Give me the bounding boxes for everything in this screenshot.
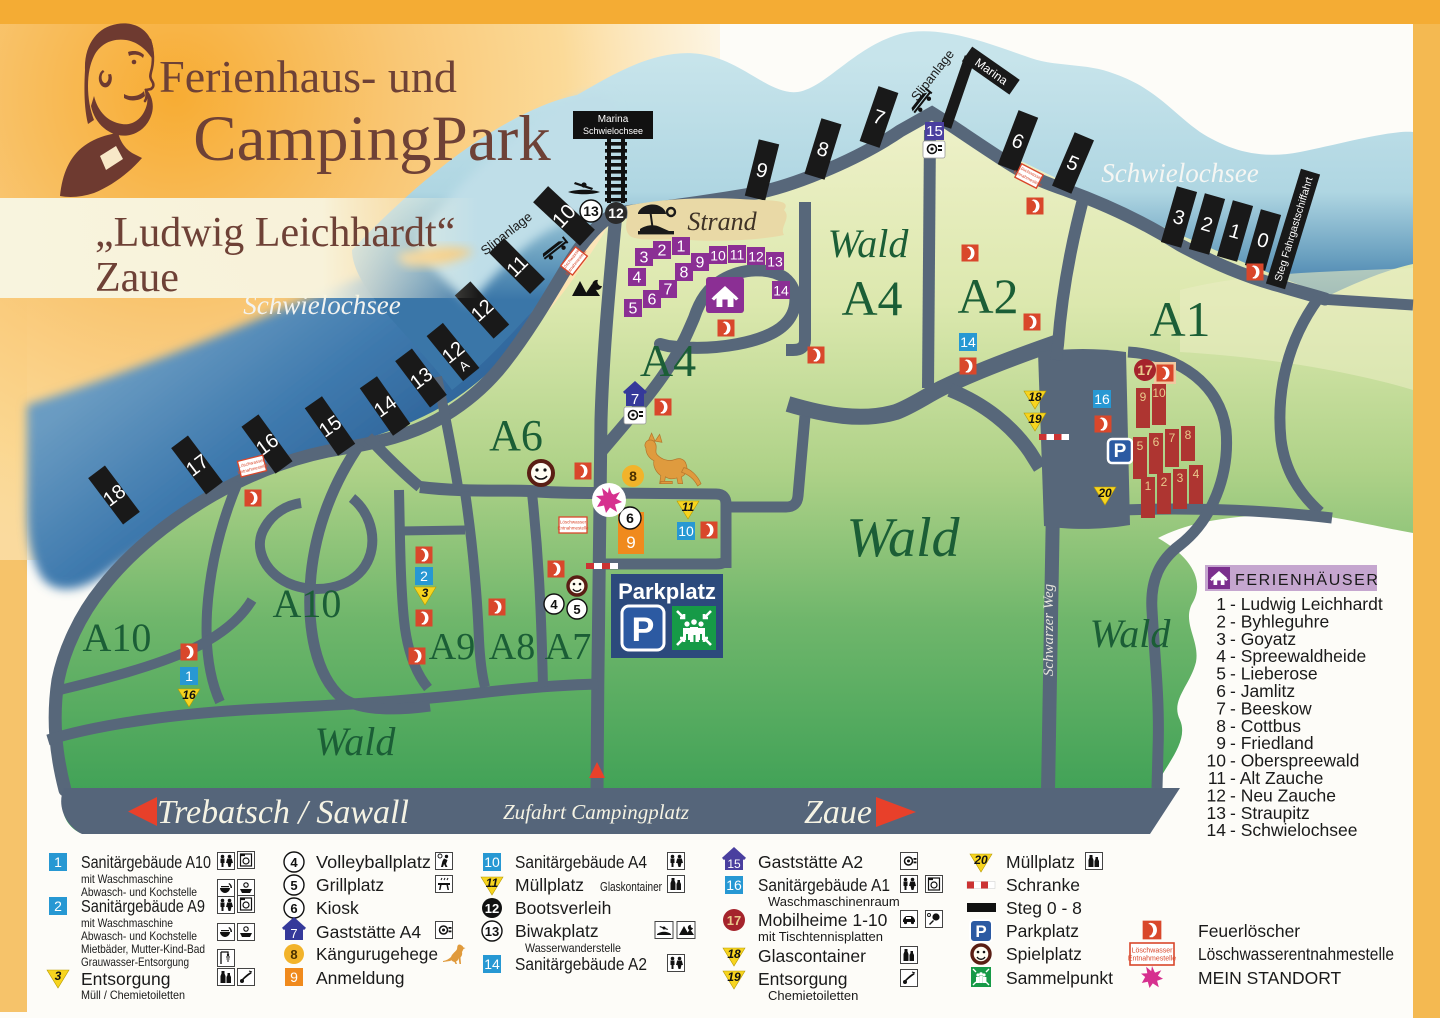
- svg-text:Entnahmestelle: Entnahmestelle: [557, 526, 589, 531]
- svg-text:14: 14: [773, 283, 789, 299]
- svg-text:13: 13: [767, 254, 783, 270]
- svg-text:A2: A2: [957, 268, 1018, 324]
- svg-text:Parkplatz: Parkplatz: [1006, 921, 1079, 941]
- svg-text:4: 4: [633, 270, 642, 287]
- svg-text:P: P: [975, 922, 986, 941]
- svg-text:Grillplatz: Grillplatz: [316, 875, 384, 895]
- svg-text:Zaue: Zaue: [95, 255, 179, 301]
- svg-text:Schwielochsee: Schwielochsee: [583, 126, 643, 136]
- svg-text:8: 8: [1185, 428, 1192, 442]
- svg-text:3: 3: [640, 250, 649, 267]
- svg-text:14: 14: [960, 334, 976, 350]
- svg-text:11: 11: [486, 876, 499, 890]
- svg-text:13: 13: [583, 203, 599, 219]
- svg-text:11: 11: [682, 500, 695, 514]
- svg-text:15: 15: [727, 857, 741, 871]
- svg-text:A10: A10: [273, 581, 342, 626]
- svg-text:14: 14: [1207, 820, 1227, 840]
- svg-text:Kiosk: Kiosk: [316, 898, 359, 918]
- svg-text:17: 17: [1137, 362, 1153, 378]
- svg-text:3: 3: [55, 969, 62, 983]
- svg-text:Bootsverleih: Bootsverleih: [515, 898, 611, 918]
- svg-text:18: 18: [727, 947, 741, 961]
- svg-text:mit Waschmaschine: mit Waschmaschine: [81, 872, 173, 886]
- svg-text:7: 7: [290, 926, 297, 941]
- svg-text:16: 16: [1094, 391, 1110, 407]
- svg-text:19: 19: [727, 970, 741, 984]
- svg-text:Steg 0 - 8: Steg 0 - 8: [1006, 898, 1082, 918]
- svg-text:6: 6: [648, 292, 657, 309]
- svg-text:Waschmaschinenraum: Waschmaschinenraum: [768, 894, 900, 909]
- svg-text:CampingPark: CampingPark: [193, 103, 551, 175]
- svg-text:10: 10: [484, 854, 500, 870]
- svg-text:9: 9: [1140, 390, 1147, 404]
- svg-text:5: 5: [1137, 439, 1144, 453]
- svg-text:Trebatsch / Sawall: Trebatsch / Sawall: [157, 794, 409, 831]
- svg-text:Sanitärgebäude A10: Sanitärgebäude A10: [81, 852, 211, 872]
- svg-text:2: 2: [658, 243, 667, 260]
- svg-text:Wald: Wald: [828, 221, 910, 266]
- svg-text:5: 5: [629, 301, 638, 318]
- svg-text:1: 1: [185, 668, 193, 684]
- svg-text:Schwarzer Weg: Schwarzer Weg: [1041, 583, 1057, 676]
- svg-text:A4: A4: [640, 335, 696, 386]
- svg-text:8: 8: [290, 947, 297, 962]
- svg-text:Kängurugehege: Kängurugehege: [316, 944, 438, 964]
- svg-text:4: 4: [550, 597, 558, 612]
- svg-text:Zufahrt Campingplatz: Zufahrt Campingplatz: [503, 800, 689, 824]
- svg-text:9: 9: [696, 255, 705, 272]
- svg-text:20: 20: [1097, 486, 1112, 500]
- svg-text:8: 8: [680, 265, 689, 282]
- svg-text:5: 5: [573, 602, 580, 617]
- svg-text:Müllplatz: Müllplatz: [1006, 852, 1075, 872]
- svg-text:2: 2: [1161, 475, 1168, 489]
- svg-text:9: 9: [626, 533, 635, 552]
- svg-text:10: 10: [710, 248, 726, 264]
- svg-text:4: 4: [1193, 467, 1200, 481]
- svg-text:Löschwasser: Löschwasser: [1132, 948, 1174, 955]
- svg-text:mit Waschmaschine: mit Waschmaschine: [81, 916, 173, 930]
- svg-text:12: 12: [608, 205, 624, 221]
- svg-text:„Ludwig Leichhardt“: „Ludwig Leichhardt“: [95, 210, 455, 256]
- svg-text:Glaskontainer: Glaskontainer: [600, 880, 662, 894]
- svg-text:Marina: Marina: [598, 114, 629, 125]
- svg-text:4: 4: [290, 855, 298, 870]
- svg-text:2: 2: [420, 568, 428, 584]
- svg-text:Entsorgung: Entsorgung: [81, 969, 171, 989]
- svg-text:Mietbäder, Mutter-Kind-Bad: Mietbäder, Mutter-Kind-Bad: [81, 942, 205, 956]
- svg-text:12: 12: [748, 249, 764, 265]
- svg-text:3: 3: [1177, 471, 1184, 485]
- svg-text:Sanitärgebäude A1: Sanitärgebäude A1: [758, 875, 890, 895]
- svg-text:10: 10: [1152, 386, 1166, 400]
- svg-text:8: 8: [629, 468, 637, 484]
- svg-text:1: 1: [1145, 479, 1152, 493]
- svg-text:6: 6: [626, 510, 634, 526]
- svg-text:A6: A6: [489, 411, 543, 460]
- svg-text:16: 16: [726, 877, 742, 893]
- svg-text:1: 1: [54, 854, 62, 870]
- svg-text:Müllplatz: Müllplatz: [515, 875, 584, 895]
- svg-text:7: 7: [664, 282, 673, 299]
- svg-text:P: P: [1114, 441, 1127, 462]
- svg-text:Sanitärgebäude A4: Sanitärgebäude A4: [515, 852, 647, 872]
- svg-text:19: 19: [1028, 412, 1042, 426]
- svg-text:12: 12: [485, 901, 499, 916]
- svg-text:6: 6: [290, 901, 297, 916]
- svg-text:Gaststätte A4: Gaststätte A4: [316, 922, 421, 942]
- svg-text:Schranke: Schranke: [1006, 875, 1080, 895]
- svg-text:Mobilheime 1-10: Mobilheime 1-10: [758, 910, 888, 930]
- svg-text:Strand: Strand: [687, 207, 757, 236]
- svg-text:Anmeldung: Anmeldung: [316, 968, 405, 988]
- svg-text:Volleyballplatz: Volleyballplatz: [316, 852, 431, 872]
- svg-text:Parkplatz: Parkplatz: [618, 579, 716, 604]
- svg-text:FERIENHÄUSER: FERIENHÄUSER: [1235, 571, 1380, 589]
- svg-text:Abwasch- und Kochstelle: Abwasch- und Kochstelle: [81, 929, 197, 943]
- svg-text:A1: A1: [1149, 291, 1210, 347]
- svg-text:Gaststätte A2: Gaststätte A2: [758, 852, 863, 872]
- svg-text:20: 20: [973, 853, 988, 867]
- svg-text:Löschwasser: Löschwasser: [560, 520, 587, 525]
- svg-text:10: 10: [678, 523, 694, 539]
- svg-text:15: 15: [926, 123, 943, 140]
- svg-text:11: 11: [730, 247, 745, 263]
- svg-text:Glascontainer: Glascontainer: [758, 946, 866, 966]
- svg-text:Entsorgung: Entsorgung: [758, 969, 848, 989]
- svg-text:13: 13: [485, 924, 499, 939]
- svg-text:7: 7: [1169, 431, 1176, 445]
- svg-text:7: 7: [631, 391, 639, 408]
- svg-text:5: 5: [290, 878, 297, 893]
- svg-text:16: 16: [182, 688, 196, 702]
- svg-text:mit Tischtennisplatten: mit Tischtennisplatten: [758, 929, 883, 944]
- svg-text:Wasserwanderstelle: Wasserwanderstelle: [525, 941, 621, 955]
- svg-text:2: 2: [54, 898, 62, 914]
- svg-text:Wald: Wald: [315, 719, 397, 764]
- svg-text:A7: A7: [545, 626, 591, 668]
- svg-text:Sammelpunkt: Sammelpunkt: [1006, 968, 1113, 988]
- svg-text:9: 9: [290, 969, 298, 985]
- svg-text:- Schwielochsee: - Schwielochsee: [1230, 820, 1357, 840]
- svg-text:Chemietoiletten: Chemietoiletten: [768, 988, 858, 1003]
- svg-text:A10: A10: [83, 615, 152, 660]
- svg-text:14: 14: [484, 956, 500, 972]
- svg-text:Entnahmestelle: Entnahmestelle: [1128, 956, 1176, 963]
- svg-text:Zaue: Zaue: [804, 794, 872, 831]
- svg-text:6: 6: [1153, 435, 1160, 449]
- svg-text:18: 18: [1028, 390, 1042, 404]
- svg-text:3: 3: [422, 586, 429, 600]
- svg-text:Wald: Wald: [846, 507, 960, 569]
- svg-text:Löschwasserentnahmestelle: Löschwasserentnahmestelle: [1198, 944, 1394, 964]
- svg-text:Spielplatz: Spielplatz: [1006, 944, 1082, 964]
- svg-text:Schwielochsee: Schwielochsee: [1101, 158, 1258, 188]
- svg-text:Müll / Chemietoiletten: Müll / Chemietoiletten: [81, 988, 185, 1002]
- svg-text:Sanitärgebäude A2: Sanitärgebäude A2: [515, 954, 647, 974]
- svg-text:Grauwasser-Entsorgung: Grauwasser-Entsorgung: [81, 955, 189, 969]
- svg-text:A4: A4: [841, 270, 902, 326]
- svg-text:MEIN STANDORT: MEIN STANDORT: [1198, 968, 1342, 988]
- svg-text:A9: A9: [429, 626, 475, 668]
- svg-text:17: 17: [727, 913, 741, 928]
- svg-text:A8: A8: [489, 626, 535, 668]
- svg-text:Biwakplatz: Biwakplatz: [515, 921, 599, 941]
- svg-text:Sanitärgebäude A9: Sanitärgebäude A9: [81, 896, 205, 916]
- svg-text:P: P: [632, 611, 655, 649]
- svg-text:Ferienhaus- und: Ferienhaus- und: [159, 51, 457, 102]
- svg-text:1: 1: [677, 239, 686, 256]
- svg-text:Feuerlöscher: Feuerlöscher: [1198, 921, 1300, 941]
- svg-text:Wald: Wald: [1090, 611, 1172, 656]
